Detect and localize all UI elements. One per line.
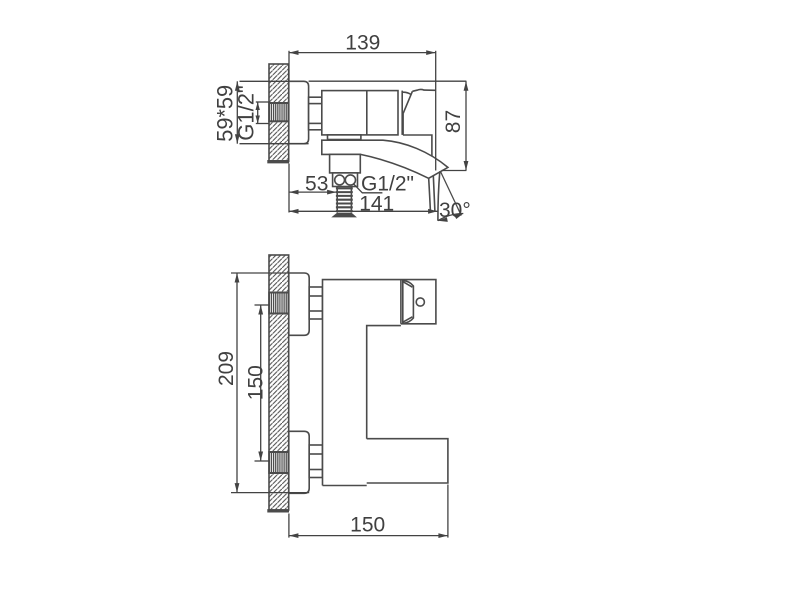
svg-text:53: 53 bbox=[305, 172, 328, 195]
svg-text:139: 139 bbox=[345, 32, 380, 55]
svg-text:30°: 30° bbox=[439, 199, 471, 222]
svg-text:209: 209 bbox=[215, 351, 238, 386]
svg-text:150: 150 bbox=[244, 365, 267, 400]
svg-text:141: 141 bbox=[359, 192, 394, 215]
svg-text:G1/2": G1/2" bbox=[233, 85, 258, 141]
svg-text:150: 150 bbox=[350, 514, 385, 537]
svg-text:87: 87 bbox=[442, 110, 465, 133]
